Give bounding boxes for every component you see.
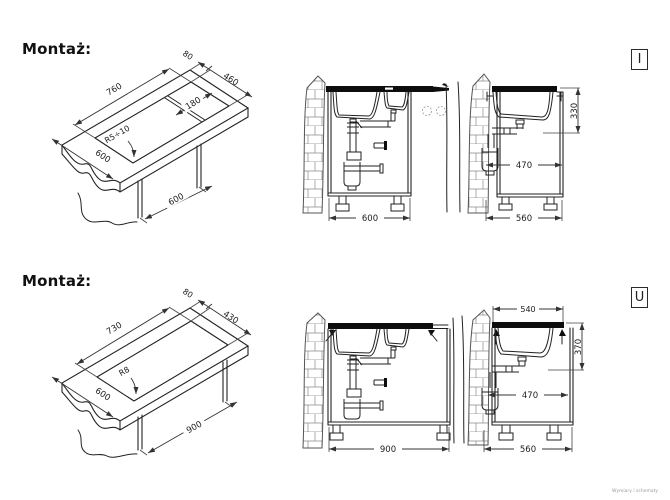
dishwasher-nozzle [374, 143, 384, 148]
dim-540: 540 [517, 304, 539, 314]
dim-line-730 [77, 308, 169, 364]
bottle-trap [344, 162, 360, 186]
drain-side-2 [518, 357, 526, 361]
brick-wall-side-2 [468, 310, 490, 445]
dim-370: 370 [574, 339, 584, 355]
dim-text-cutout-width-2: 430 [221, 309, 240, 326]
cabinet-feet [336, 196, 404, 211]
cabinet-box-side [497, 92, 563, 197]
dim-text-height-1: 330 [570, 103, 580, 119]
mount-hole-1 [423, 107, 432, 116]
dim-line-760 [75, 69, 169, 125]
clamps-side-2 [493, 329, 566, 336]
bowl-small-inner-2 [387, 329, 406, 344]
dishwasher-nozzle-2 [374, 380, 384, 385]
brick-wall [303, 76, 325, 213]
broken-material-2 [78, 430, 137, 457]
overflow-slot [385, 88, 393, 90]
ext-lines-80-430 [190, 301, 248, 345]
rim-clip [442, 83, 449, 87]
dim-front-width-2: 900 [374, 444, 402, 456]
dim-80-2: 80 [181, 287, 194, 300]
dim-text-front-width-1: 600 [362, 214, 378, 224]
dim-330: 330 [570, 103, 580, 119]
iso-view-2: 730 80 430 R8 600 [52, 287, 251, 457]
sink-rim-2 [328, 323, 433, 329]
dim-text-edge-offset-1: 80 [181, 49, 194, 62]
drain-large-2 [350, 356, 356, 359]
radius-text-2: R8 [117, 365, 131, 378]
drain-large [350, 119, 356, 122]
outlet-pipe-2 [360, 403, 380, 408]
dim-470-1: 470 [510, 160, 538, 172]
dim-text-height-2: 370 [574, 339, 584, 355]
brick-wall-2 [303, 313, 325, 448]
variant-letter-1: I [638, 52, 642, 67]
broken-material [78, 193, 137, 225]
countertop-top-face [62, 70, 248, 183]
nozzle-cap-2 [384, 378, 387, 387]
clamp-legs [326, 331, 437, 341]
trap-fitting [347, 152, 361, 160]
dim-text-outlet-1: 470 [516, 161, 532, 171]
mount-clamps [487, 92, 563, 101]
bottle-trap-2 [344, 399, 360, 419]
bowl-large-inner [336, 92, 377, 116]
cabinet-feet-2 [330, 425, 450, 440]
radius-text-1: R5÷10 [103, 124, 131, 146]
drawing-sheet: 760 80 460 180 R5÷10 [0, 0, 670, 500]
dim-front-width-1: 600 [356, 213, 384, 225]
dim-460: 460 [221, 71, 240, 88]
dim-900: 900 [181, 416, 208, 438]
outlet-pipe [360, 166, 380, 171]
dim-text-outlet-2: 470 [522, 391, 538, 401]
dim-430: 430 [221, 309, 240, 326]
trap-fitting-2 [347, 389, 361, 397]
outlet-flange [380, 164, 383, 173]
bowl-profile-inner [496, 92, 550, 117]
cabinet-side-panels-2 [138, 360, 227, 450]
outlet-flange-2 [380, 401, 383, 410]
broken-panel-right [446, 82, 460, 212]
variant-box-I: I [631, 49, 648, 70]
cabinet-box-side-2 [492, 328, 573, 425]
broken-panel-right-2 [453, 316, 464, 443]
dim-text-cutout-width-1: 460 [221, 71, 240, 88]
radius-leader-1 [128, 141, 134, 157]
dim-760: 760 [105, 81, 124, 98]
nozzle-cap [384, 141, 387, 150]
bowl-profile-inner-2 [498, 328, 550, 353]
dim-text-cutout-length-1: 760 [105, 81, 124, 98]
dim-text-depth-cab-2: 560 [520, 445, 536, 455]
bowl-profile-outer-2 [495, 328, 553, 357]
radius-note-1: R5÷10 [103, 124, 131, 146]
radius-note-2: R8 [117, 365, 131, 378]
variant-box-U: U [631, 287, 648, 308]
bowl-large-inner-2 [336, 329, 377, 353]
dim-560-2: 560 [514, 444, 542, 456]
cabinet-feet-side-2 [499, 425, 561, 440]
radius-leader-2 [131, 378, 136, 394]
sink-rim-side-2 [492, 322, 564, 328]
cabinet-feet-side [499, 197, 557, 210]
section-title-2: Montaż: [22, 272, 91, 290]
dim-text-cutout-length-2: 730 [105, 320, 124, 337]
dim-730: 730 [105, 320, 124, 337]
sink-rim-side [492, 86, 557, 92]
technical-drawing: 760 80 460 180 R5÷10 [0, 0, 670, 500]
front-view-2: 900 [303, 313, 464, 455]
dim-560-1: 560 [510, 213, 538, 225]
section-title-1: Montaż: [22, 40, 91, 58]
dim-text-edge-offset-2: 80 [181, 287, 194, 300]
drain-small-2 [391, 347, 396, 350]
bowl-small-inner [387, 92, 406, 107]
cabinet-box [328, 92, 411, 196]
drain-side [516, 120, 524, 124]
countertop-top-face-2 [62, 308, 248, 421]
dim-text-depth-cab-1: 560 [516, 214, 532, 224]
front-view-1: 600 [303, 76, 460, 224]
footnote: Wymiary i schematy [612, 489, 658, 494]
mount-hole-2 [437, 107, 446, 116]
side-view-2: 540 370 [468, 304, 584, 455]
sink-rim [326, 86, 433, 92]
dim-470-2: 470 [516, 390, 544, 402]
drain-small [391, 110, 396, 113]
side-view-1: 330 470 560 [468, 74, 580, 224]
dim-text-top-width: 540 [520, 305, 535, 314]
iso-view-1: 760 80 460 180 R5÷10 [52, 49, 252, 225]
counter-extension [433, 325, 448, 329]
dim-text-front-width-2: 900 [380, 445, 396, 455]
variant-letter-2: U [635, 290, 645, 305]
trap-cap [348, 186, 356, 190]
dim-80: 80 [181, 49, 194, 62]
side-pipes [488, 124, 523, 148]
